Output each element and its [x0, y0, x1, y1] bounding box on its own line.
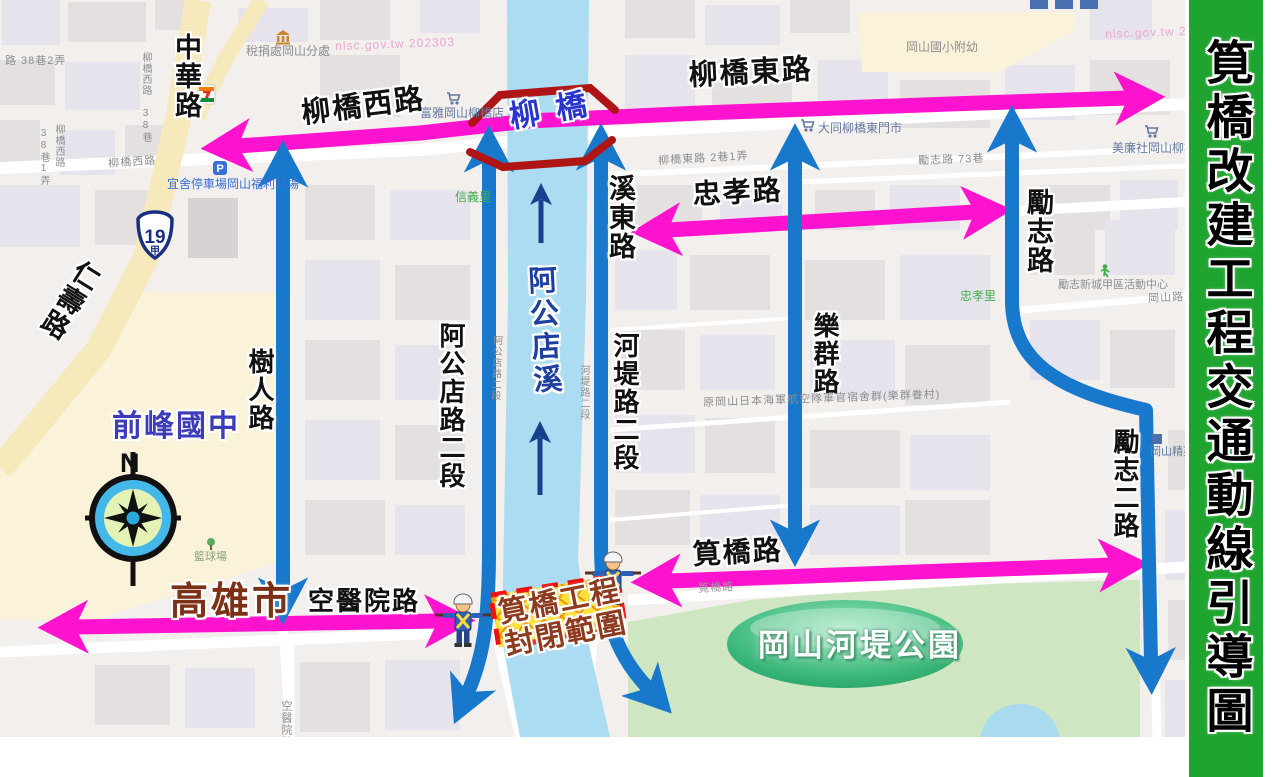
map-title: 筧橋改建工程交通動線引導圖: [1203, 38, 1250, 740]
creek-name-label: 阿公店溪: [524, 264, 560, 397]
traffic-guidance-map: 19 甲 P: [0, 0, 1272, 777]
map-label-gangshan-rd: 岡山路: [1148, 292, 1185, 305]
poi-parking-lot: 宜舍停車場岡山福利站場: [167, 178, 299, 190]
road-label-kongyiyuan: 空醫院路: [308, 588, 420, 614]
poi-icon: [1152, 434, 1162, 444]
poi-activity-center: 勵志新城甲區活動中心: [1058, 280, 1168, 291]
route-19-suffix: 甲: [150, 245, 160, 257]
watermark: nlsc.gov.tw 2023: [1105, 24, 1185, 40]
compass-north-letter: N: [120, 450, 140, 477]
road-label-lizhi-2: 勵志二路: [1112, 428, 1138, 540]
road-label-agongdian-2: 阿公店路二段: [438, 322, 464, 490]
parking-icon: P: [213, 161, 227, 175]
road-label-lizhi: 勵志路: [1024, 188, 1051, 275]
poi-elementary: 岡山國小附幼: [906, 41, 978, 53]
map-viewport[interactable]: 19 甲 P: [0, 0, 1185, 737]
map-label-liuqiao-west-38: 柳橋西路 38巷: [140, 52, 150, 143]
map-label-lizhi-73: 勵志路 73巷: [918, 154, 985, 167]
road-label-xidong: 溪東路: [606, 174, 633, 261]
park-name-label: 岡山河堤公園: [758, 630, 962, 661]
road-label-lequn: 樂群路: [812, 312, 838, 396]
junior-high-label: 前峰國中: [112, 412, 240, 442]
road-label-shuren: 樹人路: [247, 348, 273, 432]
city-name-label: 高雄市: [170, 583, 293, 621]
title-banner: 筧橋改建工程交通動線引導圖: [1189, 0, 1263, 777]
poi-basketball-court: 籃球場: [194, 552, 227, 563]
road-label-zhonghua: 中華路: [172, 33, 199, 120]
poi-elite: 岡山精英: [1150, 447, 1185, 458]
map-label-lane38-1: 38巷1弄: [38, 128, 48, 186]
poi-meilian-store: 美廉社岡山柳橋東店: [1112, 142, 1185, 154]
map-label-liuqiao-west-v: 柳橋西路: [53, 124, 63, 168]
poi-fuya-store: 富雅岡山柳橋店: [420, 107, 504, 119]
map-label-hedi-sm: 河堤路二段: [578, 365, 588, 420]
road-label-liuqiao-east: 柳橋東路: [688, 56, 813, 91]
map-label-agongdian-sm: 阿公店路二段: [489, 335, 501, 401]
map-label-lane38-2: 路 38巷2弄: [5, 56, 66, 67]
parking-icon-letter: P: [216, 163, 223, 175]
map-label-kongyiyuan-sm: 空醫院路: [280, 700, 291, 737]
poi-tax-office: 稅捐處岡山分處: [246, 45, 330, 57]
poi-datong-store: 大同柳橋東門市: [818, 122, 902, 134]
route-19-number: 19: [144, 227, 165, 248]
district-zhongxiao-li: 忠孝里: [960, 290, 996, 302]
map-label-jianqiao-sm: 筧橋路: [698, 582, 735, 595]
road-label-zhongxiao: 忠孝路: [692, 176, 783, 209]
road-label-hedi-2: 河堤路二段: [612, 332, 638, 472]
district-xinyi-li: 信義里: [455, 191, 491, 203]
road-label-jianqiao: 筧橋路: [692, 536, 783, 569]
